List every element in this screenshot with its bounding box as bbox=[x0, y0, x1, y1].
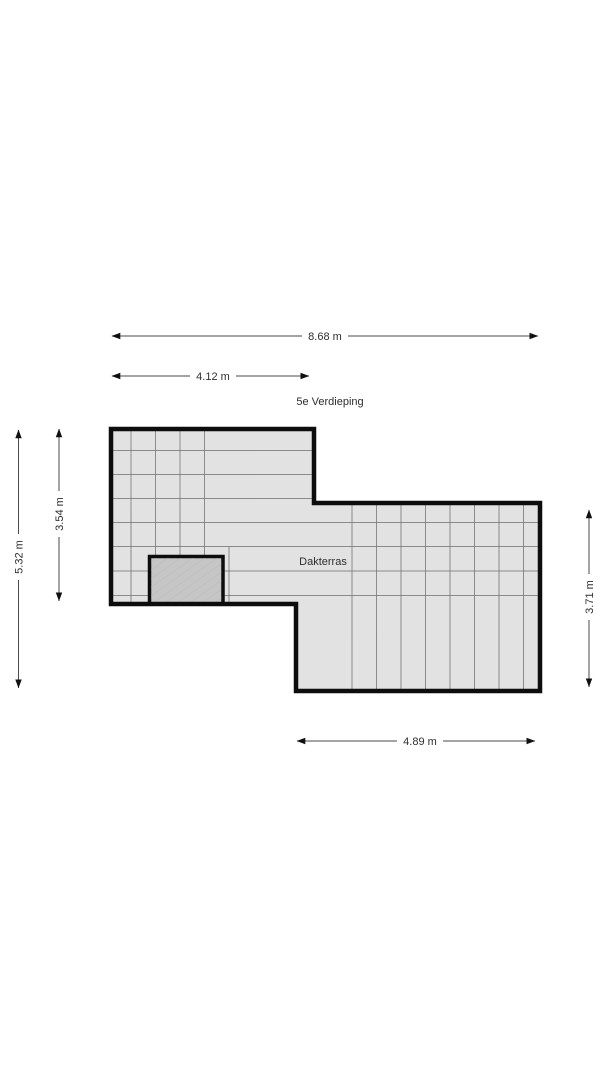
dimension-bottom-section: 4.89 m bbox=[297, 735, 535, 748]
dimension-label-left-total: 5.32 m bbox=[14, 540, 26, 574]
dimension-left-total: 5.32 m bbox=[13, 430, 26, 688]
floorplan-canvas: Dakterras 5e Verdieping 8.68 m 4.12 m 5.… bbox=[0, 0, 608, 1080]
dimension-label-top-total: 8.68 m bbox=[308, 331, 342, 343]
room-label: Dakterras bbox=[299, 556, 347, 568]
dimension-top-total: 8.68 m bbox=[112, 330, 538, 343]
dimension-right-section: 3.71 m bbox=[583, 510, 596, 687]
dimension-left-section: 3.54 m bbox=[53, 429, 66, 601]
dimension-top-left-section: 4.12 m bbox=[112, 370, 309, 383]
dimension-label-bottom-section: 4.89 m bbox=[403, 736, 437, 748]
dimension-label-right-section: 3.71 m bbox=[584, 580, 596, 614]
floor-title: 5e Verdieping bbox=[296, 396, 363, 408]
dimension-label-left-section: 3.54 m bbox=[54, 497, 66, 531]
roof-access-structure bbox=[150, 557, 224, 605]
roof-access-structure-hatch bbox=[151, 558, 222, 603]
dimension-label-top-left-section: 4.12 m bbox=[196, 371, 230, 383]
floorplan-page: Dakterras 5e Verdieping 8.68 m 4.12 m 5.… bbox=[0, 0, 608, 1080]
